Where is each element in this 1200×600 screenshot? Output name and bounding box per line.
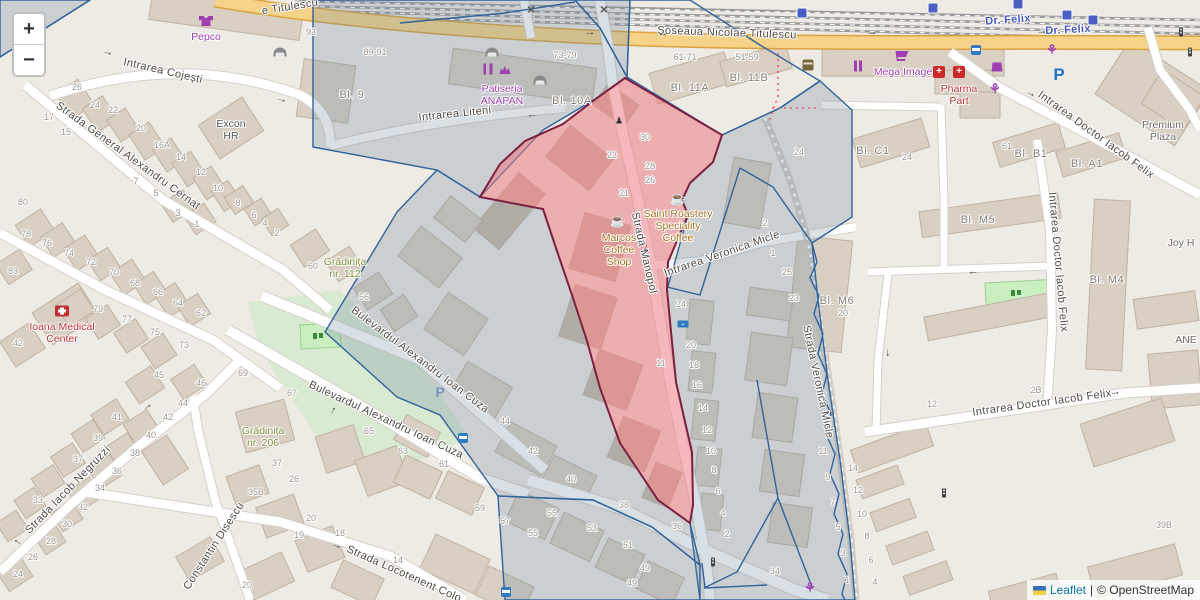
- leaflet-link[interactable]: Leaflet: [1050, 583, 1086, 597]
- attribution-separator: |: [1090, 583, 1093, 597]
- ukraine-flag-icon: [1033, 586, 1046, 595]
- attribution-bar: Leaflet | © OpenStreetMap: [1027, 580, 1200, 600]
- zoom-out-button[interactable]: −: [14, 45, 44, 75]
- zoom-in-button[interactable]: +: [14, 14, 44, 45]
- zoom-control: + −: [12, 12, 46, 77]
- map-canvas[interactable]: e TitulescuȘoseaua Nicolae TitulescuDr. …: [0, 0, 1200, 600]
- map-tiles: [0, 0, 1200, 600]
- osm-attribution: © OpenStreetMap: [1097, 583, 1194, 597]
